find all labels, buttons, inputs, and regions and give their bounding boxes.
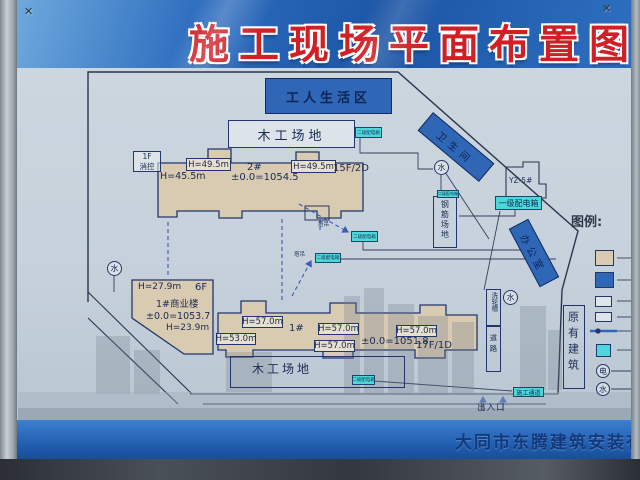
b1s-floors: 6F [195, 283, 207, 294]
electric-symbol-icon: 电 [596, 364, 610, 378]
workers-living-label: 工人生活区 [286, 87, 371, 106]
level1-label: 一级配电箱 [499, 198, 539, 209]
b1-height-box4: H=57.0m [314, 340, 355, 352]
crane-tag-1: 塔吊 [318, 223, 329, 229]
legend-swatch-distribution [596, 344, 611, 357]
sign-photo: 施工现场平面布置图 ✕ ✕ [0, 0, 640, 480]
workers-living-area: 工人生活区 [265, 78, 392, 114]
b1s-height-low: H=23.9m [166, 324, 209, 333]
carpentry-top-label: 木工场地 [257, 125, 325, 144]
rebar-yard-label: 钢筋场地 [440, 200, 448, 240]
water-symbol-icon: 水 [107, 261, 122, 276]
level2-distribution-box: 二级配电箱 [355, 127, 382, 138]
tower-crane-arrow [292, 261, 311, 296]
level2-distribution-box: 二级配电箱 [352, 375, 375, 385]
legend-swatch-temporary [595, 272, 614, 288]
fire-control-box: 1F 消控 [133, 151, 161, 172]
b2-height-top-1: H=49.5m [188, 160, 229, 170]
frame-bottom [0, 459, 640, 480]
legend-swatch-open2 [595, 312, 612, 322]
fire-control-line2: 消控 [140, 161, 155, 172]
legend-title: 图例: [571, 216, 602, 230]
carpentry-bottom-label: 木工场地 [252, 363, 312, 376]
company-name: 大同市东腾建筑安装有 [455, 428, 640, 453]
level2-distribution-box: 二级配电箱 [437, 190, 459, 198]
b1-height-left: H=53.0m [216, 334, 257, 344]
b1s-elevation: ±0.0=1053.7 [146, 312, 210, 322]
b2-height-top-2: H=49.5m [293, 162, 334, 172]
legend-swatch-building [595, 250, 614, 266]
crane-tag-2: 塔吊 [294, 253, 305, 259]
yz5-label: YZ-5# [509, 177, 532, 185]
footer-band: 大同市东腾建筑安装有 [17, 420, 631, 459]
site-plan-linework [0, 0, 640, 480]
electric-glyph: 电 [599, 366, 607, 377]
water-glyph-1: 水 [111, 263, 119, 274]
b2-floors: 15F/2D [333, 164, 369, 175]
b1-floors: 17F/1D [416, 341, 452, 352]
water-symbol-icon: 水 [503, 290, 518, 305]
carpentry-yard-top: 木工场地 [228, 120, 355, 148]
level2-distribution-box: 二级配电箱 [315, 253, 341, 263]
level2-label-3: 二级配电箱 [353, 234, 376, 240]
b1-height-left-box: H=53.0m [216, 333, 256, 345]
b2-height-top-box1: H=49.5m [186, 158, 231, 171]
road-label: 道路 [489, 334, 497, 355]
level2-label-2: 二级配电箱 [438, 191, 458, 197]
existing-building-label: 原有建筑 [567, 311, 579, 375]
frame-pole-left [0, 0, 17, 459]
level2-label-5: 二级配电箱 [352, 377, 375, 383]
b1-height-2: H=57.0m [318, 324, 359, 334]
passage-label: 施工通道 [516, 388, 540, 397]
b1-height-3: H=57.0m [396, 326, 437, 336]
level2-distribution-box: 二级配电箱 [351, 231, 378, 242]
entrance-label: 出入口 [477, 404, 506, 413]
level2-label-1: 二级配电箱 [357, 130, 380, 136]
b1s-height-main: H=27.9m [138, 283, 181, 292]
b1-height-4: H=57.0m [314, 341, 355, 351]
water-glyph-3: 水 [507, 292, 515, 303]
b1s-name: 1#商业楼 [156, 300, 199, 310]
b1-height-box2: H=57.0m [318, 323, 359, 335]
fire-control-line1: 1F [142, 152, 151, 161]
b2-elevation: ±0.0=1054.5 [231, 173, 299, 184]
water-symbol-icon: 水 [434, 160, 449, 175]
water-glyph-legend: 水 [599, 384, 607, 395]
construction-passage-box: 施工通道 [513, 387, 544, 397]
b2-height-main: H=45.5m [160, 172, 206, 182]
b1-height-1: H=57.0m [242, 317, 283, 327]
level1-distribution-box: 一级配电箱 [495, 196, 542, 210]
water-symbol-icon: 水 [596, 382, 610, 396]
b1-name: 1# [289, 324, 304, 335]
frame-pole-right [631, 0, 640, 459]
water-glyph-2: 水 [438, 162, 446, 173]
level2-label-4: 二级配电箱 [317, 255, 340, 261]
wheel-wash-label: 洗轮槽 [490, 292, 497, 312]
b1-height-box1: H=57.0m [242, 316, 283, 328]
legend-swatch-open1 [595, 296, 612, 307]
